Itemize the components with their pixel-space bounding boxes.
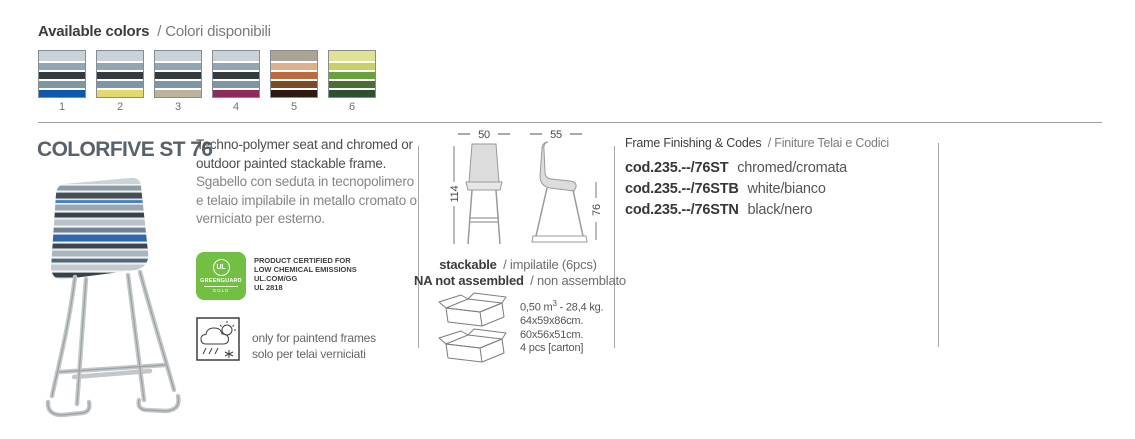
code-row-chromed: cod.235.--/76ST chromed/cromata [625, 158, 847, 179]
horizontal-divider [38, 122, 1102, 123]
greenguard-divider [204, 286, 238, 287]
available-colors-title-it: / Colori disponibili [157, 23, 271, 40]
stackable-note-en: stackable [439, 257, 496, 272]
assembled-note-en: NA not assembled [414, 273, 524, 288]
available-colors-title-en: Available colors [38, 23, 149, 40]
color-swatch-2-stripes [96, 50, 144, 98]
greenguard-logo: UL GREENGUARD GOLD [196, 252, 246, 300]
packaging-size-outer: 64x59x86cm. [520, 315, 603, 329]
dim-height-total: 114 [449, 185, 461, 202]
code-row-black: cod.235.--/76STN black/nero [625, 200, 847, 221]
color-swatch-1-stripes [38, 50, 86, 98]
stool-side-view [532, 142, 587, 242]
color-swatch-1: 1 [38, 50, 86, 113]
code-value: cod.235.--/76STN [625, 202, 739, 218]
outdoor-weather-icon [196, 317, 240, 361]
color-swatch-1-number: 1 [59, 101, 65, 113]
ul-circle-icon: UL [213, 259, 230, 276]
product-photo-stool [28, 176, 193, 434]
vertical-divider-3 [938, 143, 939, 347]
color-swatch-5: 5 [270, 50, 318, 113]
greenguard-line-3: UL.COM/GG [254, 274, 357, 283]
color-swatch-3-number: 3 [175, 101, 181, 113]
color-swatch-4: 4 [212, 50, 260, 113]
greenguard-tier: GOLD [213, 288, 230, 293]
dimension-diagram: 50 55 114 76 [424, 126, 610, 258]
product-description: Techno-polymer seat and chromed or outdo… [196, 136, 420, 229]
greenguard-certification-text: PRODUCT CERTIFIED FOR LOW CHEMICAL EMISS… [254, 256, 357, 292]
stool-frame-chrome [48, 272, 179, 415]
dim-width-side: 55 [550, 129, 562, 141]
color-swatch-6: 6 [328, 50, 376, 113]
stool-front-view [466, 144, 502, 244]
color-swatch-5-stripes [270, 50, 318, 98]
assembled-note: NA not assembled / non assemblato [414, 273, 618, 288]
code-finish: chromed/cromata [737, 160, 847, 176]
color-swatch-6-stripes [328, 50, 376, 98]
codes-header-en: Frame Finishing & Codes [625, 136, 761, 150]
color-swatch-4-number: 4 [233, 101, 239, 113]
stackable-note: stackable / impilatile (6pcs) [420, 257, 616, 272]
code-value: cod.235.--/76ST [625, 160, 728, 176]
packaging-info: 0,50 m3 - 28,4 kg. 64x59x86cm. 60x56x51c… [520, 297, 603, 356]
available-colors-title: Available colors / Colori disponibili [38, 23, 271, 40]
greenguard-line-2: LOW CHEMICAL EMISSIONS [254, 265, 357, 274]
code-finish: white/bianco [748, 181, 826, 197]
code-finish: black/nero [748, 202, 813, 218]
color-swatch-5-number: 5 [291, 101, 297, 113]
vertical-divider-2 [614, 146, 615, 348]
dim-height-seat: 76 [591, 204, 603, 216]
color-swatch-6-number: 6 [349, 101, 355, 113]
color-swatch-3: 3 [154, 50, 202, 113]
dim-width-front: 50 [478, 129, 490, 141]
greenguard-line-1: PRODUCT CERTIFIED FOR [254, 256, 357, 265]
catalog-page: Available colors / Colori disponibili 1 … [0, 0, 1135, 439]
codes-header: Frame Finishing & Codes / Finiture Telai… [625, 136, 889, 150]
color-swatch-3-stripes [154, 50, 202, 98]
page-title: COLORFIVE ST 76 [37, 138, 212, 162]
color-swatch-4-stripes [212, 50, 260, 98]
codes-list: cod.235.--/76ST chromed/cromata cod.235.… [625, 158, 847, 221]
color-swatch-2-number: 2 [117, 101, 123, 113]
greenguard-name: GREENGUARD [200, 278, 242, 284]
product-description-en: Techno-polymer seat and chromed or outdo… [196, 137, 413, 171]
packaging-volume: 0,50 m3 - 28,4 kg. [520, 297, 603, 315]
carton-boxes-icon [438, 292, 518, 364]
stool-seat-stripes [46, 176, 156, 286]
stackable-note-it: / impilatile (6pcs) [503, 257, 597, 272]
assembled-note-it: / non assemblato [530, 273, 626, 288]
color-swatch-row: 1 2 3 4 5 6 [38, 50, 376, 113]
outdoor-note-it: solo per telai verniciati [252, 346, 376, 362]
code-row-white: cod.235.--/76STB white/bianco [625, 179, 847, 200]
packaging-qty: 4 pcs [carton] [520, 342, 603, 356]
code-value: cod.235.--/76STB [625, 181, 739, 197]
outdoor-note-en: only for paintend frames [252, 330, 376, 346]
codes-header-it: / Finiture Telai e Codici [768, 136, 889, 150]
color-swatch-2: 2 [96, 50, 144, 113]
product-description-it: Sgabello con seduta in tecnopolimero e t… [196, 174, 417, 226]
outdoor-note: only for paintend frames solo per telai … [252, 330, 376, 362]
packaging-size-inner: 60x56x51cm. [520, 329, 603, 343]
greenguard-line-4: UL 2818 [254, 283, 357, 292]
